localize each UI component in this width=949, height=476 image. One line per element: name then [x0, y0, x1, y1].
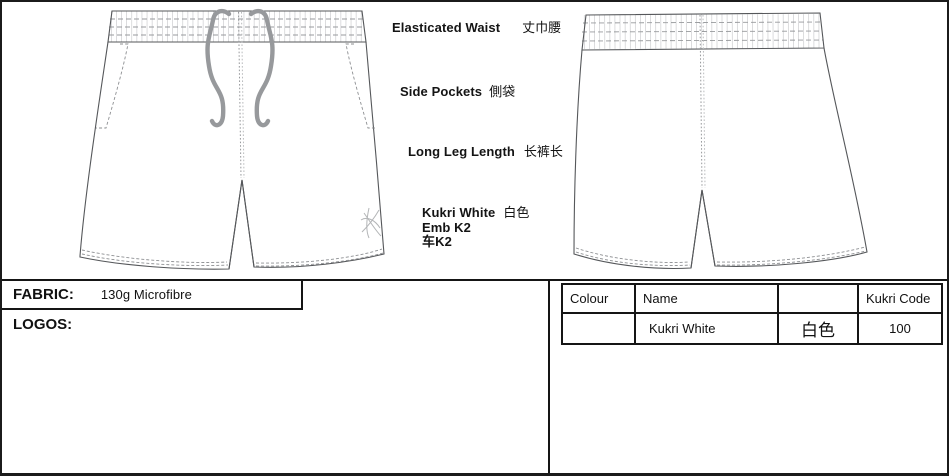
fabric-value: 130g Microfibre — [101, 287, 192, 302]
annotation-elasticated-waist: Elasticated Waist丈巾腰 — [392, 21, 561, 34]
spec-sheet-page: Elasticated Waist丈巾腰 Side Pockets側袋 Long… — [0, 0, 949, 476]
shorts-body-outline — [574, 48, 867, 268]
annotation-text: 车K2 — [422, 234, 452, 249]
header-kukri-code: Kukri Code — [858, 284, 942, 313]
annotation-text-zh: 側袋 — [489, 84, 515, 99]
side-pocket-left — [96, 44, 128, 128]
cell-colour-name: Kukri White — [635, 313, 778, 344]
crotch-seam — [229, 180, 254, 269]
cell-kukri-code: 100 — [858, 313, 942, 344]
kukri-logo-icon — [361, 208, 381, 238]
annotation-kukri-logo: Kukri White白色 Emb K2 车K2 — [422, 206, 529, 250]
colour-table: Colour Name Kukri Code Kukri White 白色 10… — [561, 283, 943, 345]
shorts-back-view — [572, 8, 874, 274]
center-front-seam — [239, 12, 242, 178]
annotation-text-zh: 白色 — [503, 205, 529, 220]
colour-table-row: Kukri White 白色 100 — [562, 313, 942, 344]
shorts-body-outline — [80, 42, 384, 269]
cell-colour-swatch — [562, 313, 635, 344]
column-divider — [548, 279, 550, 475]
annotation-text-zh: 长裤长 — [524, 144, 563, 159]
cell-colour-name-zh: 白色 — [778, 313, 858, 344]
hem-stitch — [576, 248, 689, 262]
colour-table-header-row: Colour Name Kukri Code — [562, 284, 942, 313]
annotation-leg-length: Long Leg Length长裤长 — [408, 145, 563, 158]
hem-stitch — [82, 250, 227, 263]
annotation-side-pockets: Side Pockets側袋 — [400, 85, 515, 98]
annotation-text: Elasticated Waist — [392, 20, 500, 35]
annotation-text: Kukri White — [422, 205, 495, 220]
shorts-back-drawing — [572, 8, 874, 274]
fabric-box: FABRIC: 130g Microfibre — [2, 279, 303, 310]
annotation-text: Emb K2 — [422, 220, 471, 235]
annotation-text-zh: 丈巾腰 — [522, 20, 561, 35]
shorts-front-drawing — [77, 8, 389, 274]
header-name-zh — [778, 284, 858, 313]
logos-label: LOGOS: — [13, 316, 72, 333]
header-colour: Colour — [562, 284, 635, 313]
side-pocket-right — [346, 44, 376, 128]
drawstring-icon — [208, 11, 273, 125]
annotation-text: Side Pockets — [400, 84, 482, 99]
header-name: Name — [635, 284, 778, 313]
crotch-seam — [691, 190, 715, 268]
fabric-label: FABRIC: — [13, 286, 74, 303]
shorts-front-view — [77, 8, 389, 274]
annotation-text: Long Leg Length — [408, 144, 515, 159]
